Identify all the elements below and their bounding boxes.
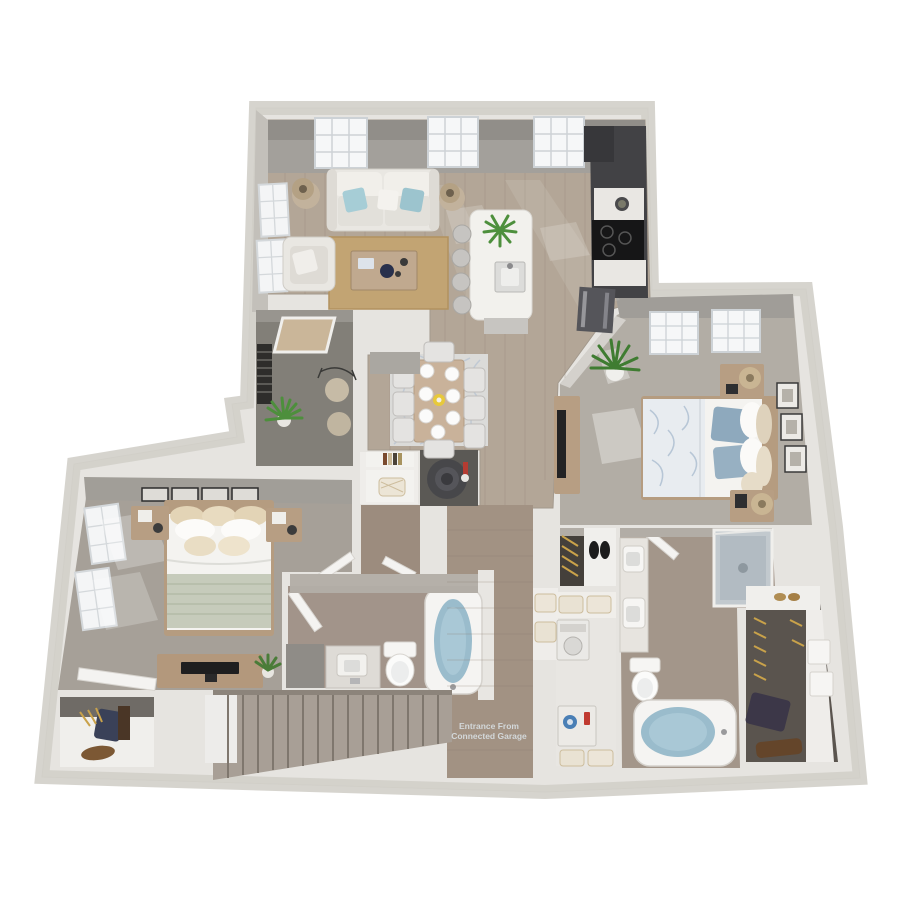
- svg-text:Connected Garage: Connected Garage: [451, 731, 527, 741]
- svg-text:Entrance From: Entrance From: [459, 721, 519, 731]
